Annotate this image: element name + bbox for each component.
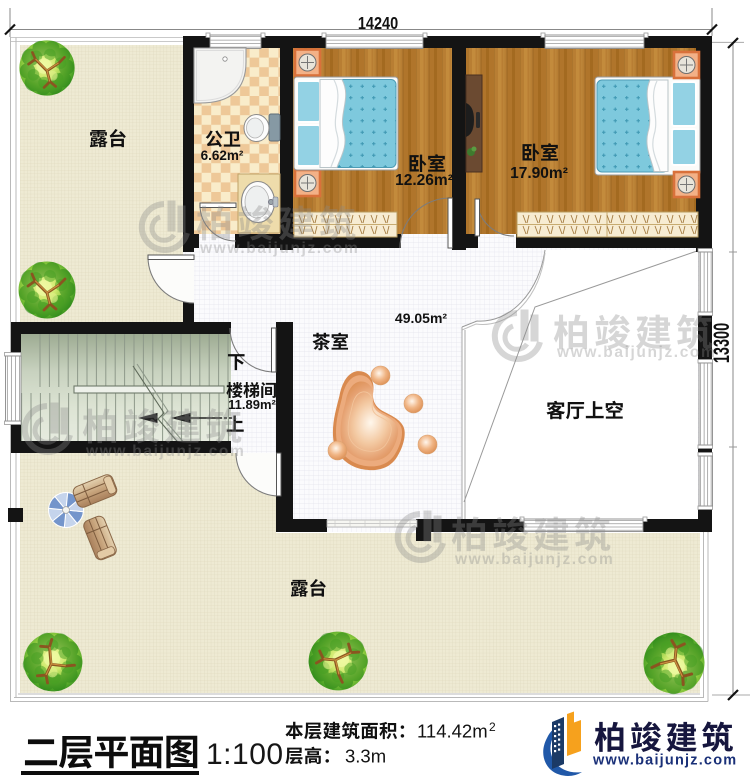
- svg-text:11.89m²: 11.89m²: [228, 397, 276, 412]
- svg-text:www.baijunjz.com: www.baijunjz.com: [556, 344, 716, 361]
- svg-text:3.3m: 3.3m: [345, 746, 386, 767]
- svg-text:49.05m²: 49.05m²: [395, 310, 447, 326]
- svg-text:www.baijunjz.com: www.baijunjz.com: [199, 240, 359, 257]
- svg-text:6.62m²: 6.62m²: [201, 148, 244, 163]
- svg-text:2: 2: [489, 720, 496, 734]
- svg-text:14240: 14240: [358, 14, 398, 34]
- svg-text:www.baijunjz.com: www.baijunjz.com: [454, 551, 614, 568]
- svg-text:12.26m²: 12.26m²: [395, 172, 453, 189]
- svg-text:www.baijunjz.com: www.baijunjz.com: [592, 753, 737, 769]
- svg-text:114.42m: 114.42m: [417, 721, 488, 742]
- svg-text:13300: 13300: [709, 323, 734, 363]
- svg-text:1:100: 1:100: [206, 738, 284, 771]
- svg-text:www.baijunjz.com: www.baijunjz.com: [85, 443, 245, 460]
- svg-text:17.90m²: 17.90m²: [510, 165, 568, 182]
